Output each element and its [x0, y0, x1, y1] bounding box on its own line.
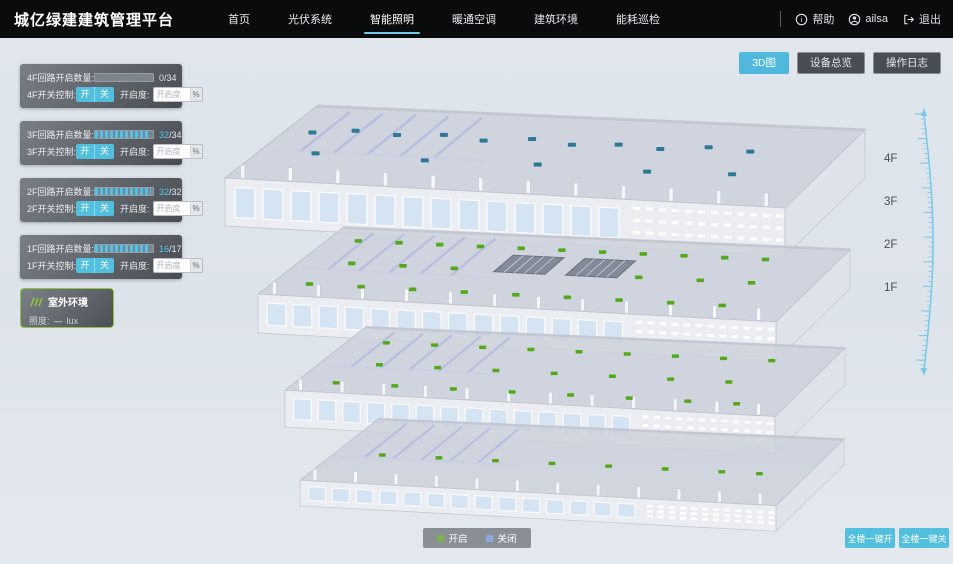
perforation-dot — [669, 506, 675, 509]
circuit-count: 0/34 — [159, 73, 177, 83]
openness-box: % — [153, 258, 203, 273]
light-fixture — [421, 158, 429, 162]
light-fixture — [549, 462, 556, 465]
perforation-dot — [684, 323, 690, 326]
logout-icon — [902, 13, 915, 26]
light-fixture — [720, 357, 727, 361]
facade-window — [599, 207, 619, 238]
facade-window — [309, 487, 326, 502]
light-fixture — [391, 384, 398, 388]
light-fixture — [379, 453, 386, 456]
outdoor-environment-icon — [29, 297, 43, 307]
user-menu[interactable]: ailsa — [848, 13, 888, 26]
perforation-dot — [710, 428, 716, 431]
switch-off-button-3F[interactable]: 关 — [95, 144, 114, 159]
perforation-dot — [642, 416, 648, 419]
perforation-dot — [688, 427, 694, 430]
perforation-dot — [633, 231, 640, 234]
ruler-arrow-up — [921, 108, 927, 116]
view-button-设备总览[interactable]: 设备总览 — [797, 52, 865, 74]
column — [336, 170, 340, 183]
perforation-dot — [776, 227, 783, 230]
perforation-dot — [688, 418, 694, 421]
light-fixture — [640, 252, 647, 256]
light-fixture — [768, 359, 775, 363]
column — [394, 474, 397, 485]
switch-off-button-2F[interactable]: 关 — [95, 201, 114, 216]
perforation-dot — [732, 326, 738, 329]
perforation-dot — [713, 508, 719, 511]
light-fixture — [440, 133, 448, 137]
circuit-progress-fill — [95, 188, 151, 195]
perforation-dot — [685, 234, 692, 237]
perforation-dot — [672, 209, 679, 212]
column — [435, 476, 438, 487]
perforation-dot — [698, 210, 705, 213]
light-fixture — [308, 131, 316, 135]
facade-window — [523, 498, 540, 513]
light-fixture — [431, 343, 438, 347]
perforation-dot — [750, 225, 757, 228]
openness-input-1F[interactable] — [153, 258, 190, 273]
facade-window — [451, 494, 468, 509]
perforation-dot — [757, 511, 763, 514]
light-fixture — [656, 147, 664, 151]
light-fixture — [508, 390, 515, 394]
light-fixture — [395, 241, 402, 245]
column — [424, 386, 428, 397]
perforation-dot — [744, 327, 750, 330]
perforation-dot — [735, 510, 741, 513]
floor-panel-3F: 3F回路开启数量:32/343F开关控制:开关开启度:% — [20, 121, 182, 165]
circuit-row-3F: 3F回路开启数量:32/34 — [27, 126, 175, 143]
perforation-dot — [680, 507, 686, 510]
facade-window — [293, 304, 312, 327]
perforation-dot — [711, 223, 718, 226]
perforation-dot — [647, 331, 653, 334]
perforation-dot — [696, 324, 702, 327]
view-button-操作日志[interactable]: 操作日志 — [873, 52, 941, 74]
perforation-dot — [676, 417, 682, 420]
perforation-dot — [702, 518, 708, 521]
column — [713, 306, 717, 318]
switch-off-button-4F[interactable]: 关 — [95, 87, 114, 102]
openness-label: 开启度: — [120, 202, 150, 215]
perforation-dot — [659, 208, 666, 211]
column — [317, 285, 321, 297]
column — [299, 379, 303, 390]
light-fixture — [667, 377, 674, 381]
perforation-dot — [691, 507, 697, 510]
facade-window — [375, 195, 395, 226]
light-fixture — [492, 369, 499, 373]
facade-window — [345, 307, 364, 330]
light-fixture — [436, 243, 443, 247]
perforation-dot — [763, 214, 770, 217]
perforation-dot — [669, 516, 675, 519]
perforation-dot — [672, 221, 679, 224]
count-total: /17 — [169, 244, 182, 254]
perforation-dot — [724, 224, 731, 227]
facade-window — [294, 399, 312, 421]
column — [674, 399, 678, 410]
logout-button[interactable]: 退出 — [902, 11, 941, 27]
light-fixture — [635, 275, 642, 279]
perforation-dot — [633, 219, 640, 222]
column — [475, 478, 478, 489]
perforation-dot — [746, 520, 752, 523]
column — [288, 168, 292, 181]
main-nav: 首页光伏系统智能照明暖通空调建筑环境能耗巡检 — [226, 0, 662, 38]
openness-label: 开启度: — [120, 145, 150, 158]
switch-row-3F: 3F开关控制:开关开启度:% — [27, 143, 175, 160]
perforation-dot — [768, 511, 774, 514]
switch-off-button-1F[interactable]: 关 — [95, 258, 114, 273]
perforation-dot — [642, 424, 648, 427]
illuminance-value: — — [54, 316, 63, 326]
light-fixture — [728, 172, 736, 176]
ruler-arrow-down — [921, 368, 927, 376]
column — [669, 188, 673, 201]
column — [637, 487, 640, 498]
perforation-dot — [699, 427, 705, 430]
app-title: 城亿绿建建筑管理平台 — [14, 9, 174, 30]
facade-window — [547, 499, 564, 514]
bulk-button-全楼一键关[interactable]: 全楼一键关 — [899, 528, 949, 548]
circuit-row-1F: 1F回路开启数量:16/17 — [27, 240, 175, 257]
floor-ruler[interactable] — [915, 108, 933, 376]
perforation-dot — [696, 333, 702, 336]
facade-window — [380, 491, 397, 506]
perforation-dot — [722, 429, 728, 432]
switch-on-button-4F[interactable]: 开 — [76, 87, 95, 102]
legend-item-on: 开启 — [436, 531, 467, 545]
perforation-dot — [724, 212, 731, 215]
facade-window — [431, 198, 451, 229]
bulk-controls: 全楼一键开全楼一键关 — [845, 528, 949, 548]
light-fixture — [756, 472, 763, 475]
perforation-dot — [767, 431, 773, 434]
column — [581, 299, 585, 311]
user-icon — [848, 13, 861, 26]
column — [556, 482, 559, 493]
openness-box: % — [153, 201, 203, 216]
illuminance-label: 照度: — [29, 314, 50, 327]
percent-button-3F[interactable]: % — [190, 144, 203, 159]
perforation-dot — [724, 514, 730, 517]
light-fixture — [684, 399, 691, 403]
facade-window — [594, 502, 611, 517]
openness-label: 开启度: — [120, 259, 150, 272]
light-fixture — [480, 139, 488, 143]
perforation-dot — [685, 222, 692, 225]
nav-item-能耗巡检[interactable]: 能耗巡检 — [614, 7, 662, 31]
perforation-dot — [698, 222, 705, 225]
column — [405, 289, 409, 301]
switch-group-3F: 开关 — [76, 144, 114, 159]
facade-window — [570, 501, 587, 516]
floor-marker-2F[interactable]: 2F — [884, 239, 897, 251]
switch-on-button-3F[interactable]: 开 — [76, 144, 95, 159]
perforation-dot — [671, 332, 677, 335]
column — [715, 401, 719, 412]
switch-row-4F: 4F开关控制:开关开启度:% — [27, 86, 175, 103]
column — [590, 395, 594, 406]
light-fixture — [306, 282, 313, 286]
nav-item-暖通空调[interactable]: 暖通空调 — [450, 7, 498, 31]
perforation-dot — [658, 516, 664, 519]
circuit-progress-fill — [95, 245, 150, 252]
column — [597, 485, 600, 496]
openness-input-4F[interactable] — [153, 87, 190, 102]
nav-item-首页[interactable]: 首页 — [226, 7, 252, 31]
openness-input-2F[interactable] — [153, 201, 190, 216]
column — [549, 392, 553, 403]
switch-label: 1F开关控制: — [27, 259, 76, 272]
facade-window — [618, 503, 635, 518]
bulk-button-全楼一键开[interactable]: 全楼一键开 — [845, 528, 895, 548]
column — [757, 404, 761, 415]
light-fixture — [436, 456, 443, 459]
facade-window — [543, 204, 563, 235]
light-fixture — [697, 278, 704, 282]
perforation-dot — [757, 521, 763, 524]
perforation-dot — [768, 516, 774, 519]
perforation-dot — [720, 325, 726, 328]
perforation-dot — [665, 425, 671, 428]
facade-window — [571, 206, 591, 237]
perforation-dot — [676, 426, 682, 429]
perforation-dot — [671, 323, 677, 326]
perforation-dot — [724, 519, 730, 522]
light-fixture — [512, 293, 519, 297]
nav-item-光伏系统[interactable]: 光伏系统 — [286, 7, 334, 31]
column — [621, 186, 625, 199]
column — [449, 292, 453, 304]
column — [382, 383, 386, 394]
light-fixture — [517, 247, 524, 251]
perforation-dot — [685, 210, 692, 213]
facade-window — [499, 497, 516, 512]
circuit-label: 1F回路开启数量: — [27, 242, 94, 255]
light-fixture — [527, 348, 534, 352]
outdoor-panel-title: 室外环境 — [48, 294, 88, 309]
light-fixture — [534, 163, 542, 167]
column — [431, 175, 435, 188]
perforation-dot — [737, 224, 744, 227]
perforation-dot — [763, 226, 770, 229]
nav-item-建筑环境[interactable]: 建筑环境 — [532, 7, 580, 31]
help-button[interactable]: i 帮助 — [795, 11, 834, 27]
column — [758, 493, 761, 504]
light-fixture — [434, 366, 441, 370]
perforation-dot — [659, 331, 665, 334]
facade-window — [347, 194, 367, 225]
facade-window — [343, 401, 361, 423]
perforation-dot — [746, 515, 752, 518]
light-fixture — [409, 288, 416, 292]
circuit-label: 2F回路开启数量: — [27, 185, 94, 198]
lighting-legend: 开启 关闭 — [422, 528, 530, 548]
light-fixture — [719, 304, 726, 308]
facade-window — [403, 197, 423, 228]
switch-on-button-1F[interactable]: 开 — [76, 258, 95, 273]
legend-on-swatch — [436, 535, 443, 542]
perforation-dot — [680, 512, 686, 515]
perforation-dot — [768, 522, 774, 525]
floor-panel-1F: 1F回路开启数量:16/171F开关控制:开关开启度:% — [20, 235, 182, 279]
column — [361, 287, 365, 299]
light-fixture — [718, 470, 725, 473]
legend-off-swatch — [486, 535, 493, 542]
floor-marker-1F[interactable]: 1F — [884, 282, 897, 294]
switch-label: 4F开关控制: — [27, 88, 76, 101]
light-fixture — [450, 387, 457, 391]
light-fixture — [662, 467, 669, 470]
perforation-dot — [735, 515, 741, 518]
divider — [780, 11, 781, 27]
perforation-dot — [713, 519, 719, 522]
perforation-dot — [698, 234, 705, 237]
percent-button-4F[interactable]: % — [190, 87, 203, 102]
switch-on-button-2F[interactable]: 开 — [76, 201, 95, 216]
light-fixture — [348, 261, 355, 265]
nav-item-智能照明[interactable]: 智能照明 — [368, 7, 416, 31]
perforation-dot — [763, 238, 770, 241]
column — [677, 489, 680, 500]
perforation-dot — [646, 208, 653, 211]
openness-input-3F[interactable] — [153, 144, 190, 159]
perforation-dot — [646, 232, 653, 235]
perforation-dot — [658, 511, 664, 514]
perforation-dot — [746, 510, 752, 513]
switch-row-2F: 2F开关控制:开关开启度:% — [27, 200, 175, 217]
light-fixture — [672, 354, 679, 358]
perforation-dot — [756, 422, 762, 425]
light-fixture — [376, 363, 383, 367]
perforation-dot — [756, 337, 762, 340]
circuit-row-4F: 4F回路开启数量:0/34 — [27, 69, 175, 86]
perforation-dot — [757, 516, 763, 519]
light-fixture — [333, 381, 340, 385]
column — [757, 308, 761, 320]
perforation-dot — [647, 515, 653, 518]
openness-box: % — [153, 87, 203, 102]
light-fixture — [568, 143, 576, 147]
perforation-dot — [702, 508, 708, 511]
circuit-count: 32/34 — [159, 130, 182, 140]
perforation-dot — [737, 236, 744, 239]
perforation-dot — [684, 333, 690, 336]
perforation-dot — [776, 239, 783, 242]
perforation-dot — [691, 517, 697, 520]
switch-group-1F: 开关 — [76, 258, 114, 273]
perforation-dot — [635, 321, 641, 324]
floor-marker-3F[interactable]: 3F — [884, 196, 897, 208]
facade-window — [319, 306, 338, 329]
count-value: 32 — [159, 187, 169, 197]
percent-button-2F[interactable]: % — [190, 201, 203, 216]
perforation-dot — [724, 509, 730, 512]
column — [354, 472, 357, 483]
perforation-dot — [750, 213, 757, 216]
light-fixture — [746, 150, 754, 154]
facade-window — [235, 188, 255, 219]
view-button-3D图[interactable]: 3D图 — [739, 52, 789, 74]
switch-label: 3F开关控制: — [27, 145, 76, 158]
perforation-dot — [744, 430, 750, 433]
light-fixture — [393, 133, 401, 137]
help-icon: i — [795, 13, 808, 26]
facade-window — [267, 303, 286, 326]
floor-panel-2F: 2F回路开启数量:32/322F开关控制:开关开启度:% — [20, 178, 182, 222]
light-fixture — [705, 145, 713, 149]
column — [340, 381, 344, 392]
outdoor-environment-panel: 室外环境 照度: — lux — [20, 288, 114, 328]
switch-row-1F: 1F开关控制:开关开启度:% — [27, 257, 175, 274]
light-fixture — [477, 245, 484, 249]
light-fixture — [492, 459, 499, 462]
perforation-dot — [724, 236, 731, 239]
perforation-dot — [713, 513, 719, 516]
count-total: /34 — [164, 73, 177, 83]
perforation-dot — [733, 429, 739, 432]
illuminance-unit: lux — [67, 316, 79, 326]
openness-label: 开启度: — [120, 88, 150, 101]
perforation-dot — [756, 327, 762, 330]
percent-button-1F[interactable]: % — [190, 258, 203, 273]
perforation-dot — [702, 513, 708, 516]
circuit-count: 16/17 — [159, 244, 182, 254]
facade-window — [428, 493, 445, 508]
light-fixture — [558, 248, 565, 252]
light-fixture — [528, 137, 536, 141]
circuit-progress-1F — [94, 244, 154, 253]
light-fixture — [312, 151, 320, 155]
facade-window — [319, 192, 339, 223]
light-fixture — [352, 129, 360, 133]
facade-window — [515, 203, 535, 234]
light-fixture — [479, 346, 486, 350]
building-floor-4F — [225, 106, 865, 256]
light-fixture — [564, 296, 571, 300]
light-fixture — [605, 465, 612, 468]
light-fixture — [551, 372, 558, 376]
light-fixture — [615, 298, 622, 302]
perforation-dot — [647, 510, 653, 513]
light-fixture — [733, 402, 740, 406]
column — [764, 193, 768, 206]
perforation-dot — [672, 233, 679, 236]
light-fixture — [399, 264, 406, 268]
column — [383, 173, 387, 186]
floor-marker-4F[interactable]: 4F — [884, 153, 897, 165]
light-fixture — [680, 254, 687, 258]
switch-group-4F: 开关 — [76, 87, 114, 102]
light-fixture — [643, 170, 651, 174]
perforation-dot — [768, 328, 774, 331]
perforation-dot — [776, 215, 783, 218]
column — [516, 480, 519, 491]
light-fixture — [461, 290, 468, 294]
facade-window — [291, 191, 311, 222]
perforation-dot — [732, 335, 738, 338]
facade-window — [475, 496, 492, 511]
perforation-dot — [733, 420, 739, 423]
count-total: /32 — [169, 187, 182, 197]
circuit-label: 4F回路开启数量: — [27, 71, 94, 84]
facade-window — [356, 489, 373, 504]
